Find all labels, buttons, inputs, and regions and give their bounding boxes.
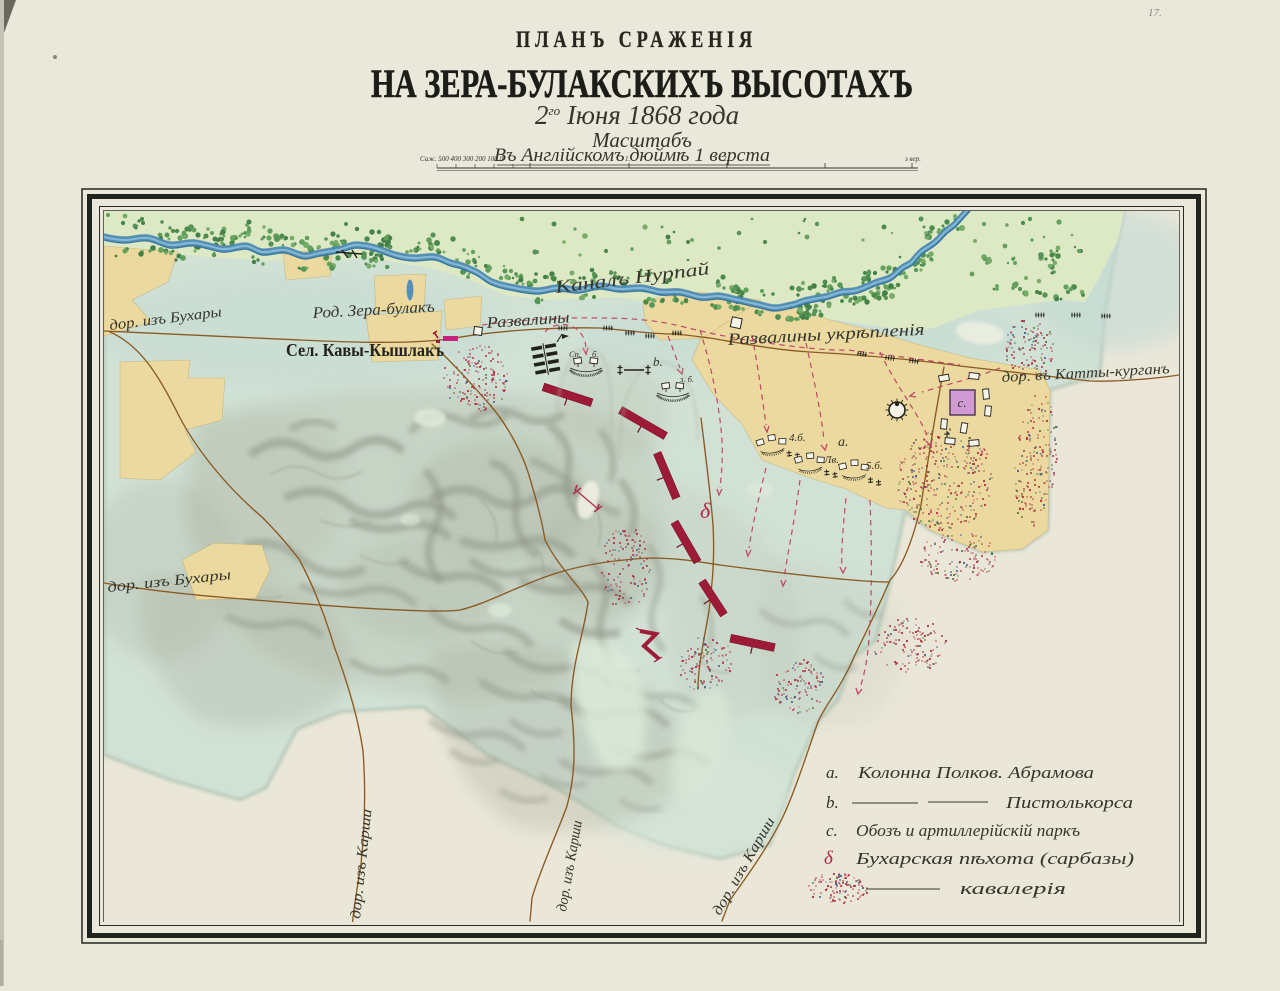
svg-text:δ: δ — [824, 848, 834, 869]
svg-text:2.: 2. — [723, 155, 729, 163]
svg-text:Сп.: Сп. — [569, 349, 581, 359]
svg-text:c.: c. — [957, 395, 966, 410]
svg-text:2го Іюня 1868 года: 2го Іюня 1868 года — [535, 100, 739, 130]
svg-text:a.: a. — [826, 763, 839, 782]
svg-text:b.: b. — [653, 354, 663, 369]
svg-text:кавалерія: кавалерія — [960, 879, 1066, 898]
svg-text:5.б.: 5.б. — [866, 460, 883, 472]
svg-text:Пистолькорса: Пистолькорса — [1005, 793, 1133, 812]
svg-text:c.: c. — [826, 821, 838, 840]
svg-text:17.: 17. — [1148, 7, 1162, 19]
svg-text:Сел. Кавы-Кышлакъ: Сел. Кавы-Кышлакъ — [286, 340, 444, 360]
svg-text:ПЛАНЪ СРАЖЕНІЯ: ПЛАНЪ СРАЖЕНІЯ — [516, 27, 757, 52]
svg-text:Бухарская пѣхота (сарбазы): Бухарская пѣхота (сарбазы) — [855, 849, 1135, 868]
svg-text:Саж. 500 400 300 200 1: Саж. 500 400 300 200 100 0 — [420, 155, 503, 163]
svg-text:Обозъ и артиллерійскій паркъ: Обозъ и артиллерійскій паркъ — [856, 821, 1080, 840]
svg-text:4.б.: 4.б. — [789, 432, 806, 444]
svg-text:δ: δ — [700, 498, 711, 523]
svg-text:Въ Англійскомъ дюймѣ 1 верста: Въ Англійскомъ дюймѣ 1 верста — [494, 145, 770, 166]
svg-text:б.: б. — [592, 349, 598, 359]
svg-text:з вер.: з вер. — [904, 155, 921, 163]
svg-text:Лв.: Лв. — [823, 454, 839, 466]
svg-text:a.: a. — [838, 435, 849, 450]
svg-text:з. б.: з. б. — [679, 374, 694, 384]
svg-text:Колонна Полков. Абрамова: Колонна Полков. Абрамова — [857, 763, 1094, 782]
svg-text:b.: b. — [826, 793, 839, 812]
svg-text:1.: 1. — [625, 155, 631, 163]
